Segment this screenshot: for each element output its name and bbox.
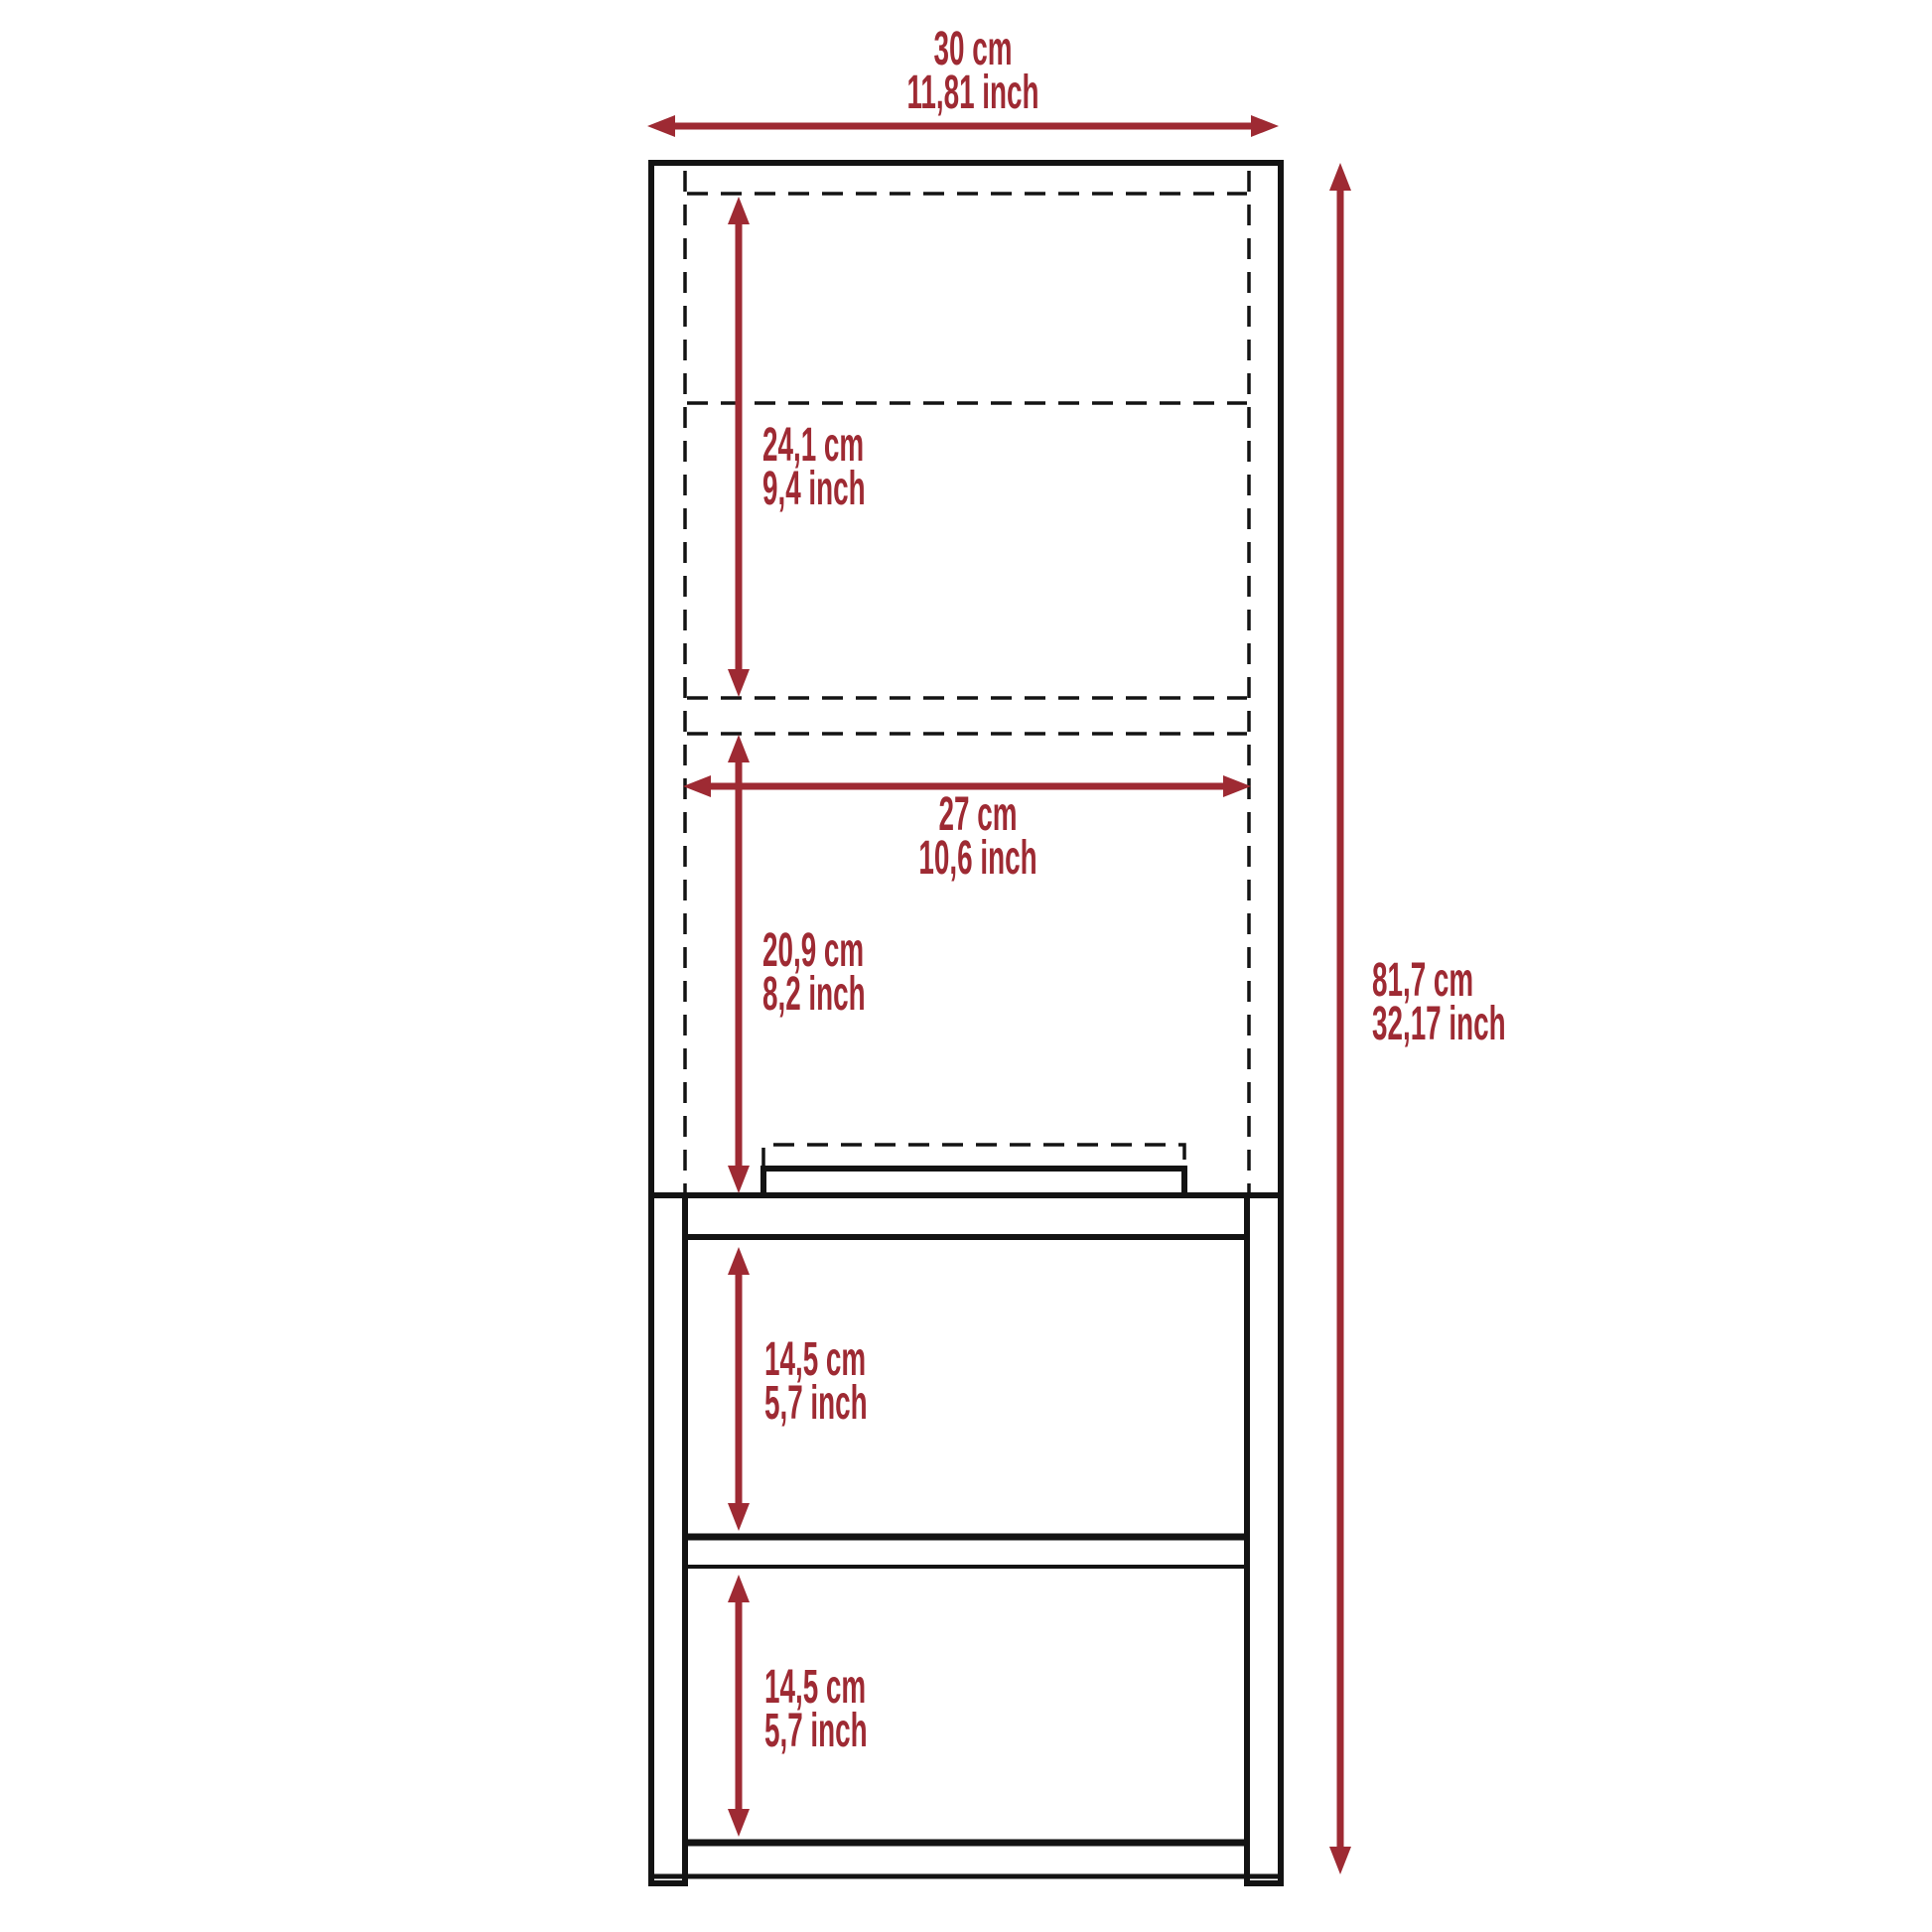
arrowhead-top [728, 735, 750, 762]
arrow-upper-shelf-height [728, 1247, 750, 1531]
overall-width-imperial: 11,81 inch [858, 71, 1088, 115]
left-side-panel [651, 1195, 685, 1883]
arrowhead-top [1329, 163, 1351, 191]
cabinet-linework [651, 163, 1281, 1883]
dimension-label-overall-width: 30 cm 11,81 inch [858, 28, 1088, 115]
arrowhead-top [728, 197, 750, 224]
overall-height-metric: 81,7 cm [1372, 959, 1506, 1003]
dimension-label-interior-width: 27 cm 10,6 inch [863, 793, 1093, 881]
upper-shelf-metric: 14,5 cm [764, 1338, 868, 1382]
overall-width-metric: 30 cm [858, 28, 1088, 71]
arrowhead-bottom [1329, 1847, 1351, 1874]
cabinet-body-outline [651, 163, 1281, 1195]
arrow-upper-cavity-height [728, 197, 750, 697]
dimension-diagram [0, 0, 1932, 1932]
right-side-panel [1247, 1195, 1281, 1883]
handle-dashed-outline [763, 1145, 1184, 1169]
dimension-label-upper-shelf: 14,5 cm 5,7 inch [764, 1338, 868, 1426]
overall-height-imperial: 32,17 inch [1372, 1003, 1506, 1046]
lower-shelf-imperial: 5,7 inch [764, 1710, 868, 1753]
lower-cavity-imperial: 8,2 inch [762, 973, 866, 1017]
arrowhead-right [1251, 115, 1279, 137]
interior-width-imperial: 10,6 inch [863, 837, 1093, 881]
arrowhead-bottom [728, 669, 750, 697]
dimension-label-lower-cavity: 20,9 cm 8,2 inch [762, 929, 866, 1017]
arrowhead-right [1223, 775, 1251, 797]
arrowhead-left [647, 115, 675, 137]
arrow-overall-height [1329, 163, 1351, 1874]
arrowhead-top [728, 1575, 750, 1602]
interior-width-metric: 27 cm [863, 793, 1093, 837]
lower-shelf-metric: 14,5 cm [764, 1666, 868, 1710]
dimension-label-overall-height: 81,7 cm 32,17 inch [1372, 959, 1506, 1046]
arrowhead-left [683, 775, 711, 797]
lower-cavity-metric: 20,9 cm [762, 929, 866, 973]
dimension-label-lower-shelf: 14,5 cm 5,7 inch [764, 1666, 868, 1753]
dimension-label-upper-cavity: 24,1 cm 9,4 inch [762, 424, 866, 511]
arrowhead-bottom [728, 1166, 750, 1193]
dimension-diagram-page: 30 cm 11,81 inch 24,1 cm 9,4 inch 27 cm … [0, 0, 1932, 1932]
door-handle [763, 1169, 1184, 1195]
upper-shelf-imperial: 5,7 inch [764, 1382, 868, 1426]
upper-cavity-imperial: 9,4 inch [762, 468, 866, 511]
arrowhead-bottom [728, 1809, 750, 1837]
upper-cavity-metric: 24,1 cm [762, 424, 866, 468]
hidden-edge-lines [685, 171, 1249, 1192]
arrow-lower-shelf-height [728, 1575, 750, 1837]
arrowhead-top [728, 1247, 750, 1275]
arrowhead-bottom [728, 1503, 750, 1531]
arrow-lower-cavity-height [728, 735, 750, 1193]
